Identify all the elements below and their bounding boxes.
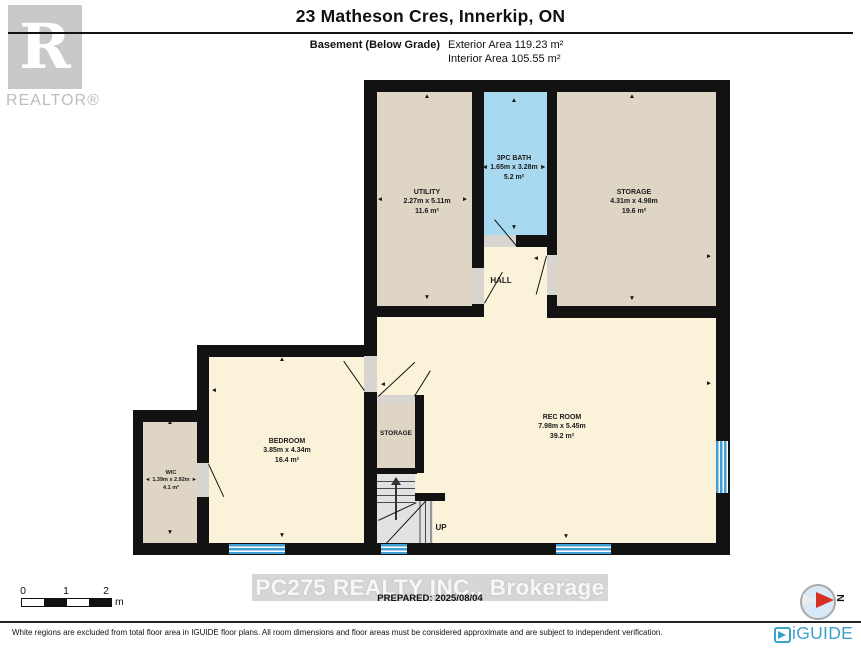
scale-bar-strip [21,598,112,607]
bedroom-door [364,356,377,392]
dim-arrow-left-icon: ◄ [380,382,386,389]
scale-tick: 2 [103,585,109,597]
stairs-window [381,544,407,554]
wall-segment [375,468,417,474]
compass-north-label: N [834,594,846,602]
wall-segment [133,410,143,555]
dim-arrow-down-icon: ▼ [279,533,285,540]
dim-arrow-down-icon: ▼ [167,530,173,537]
floor-plan-sheet: R REALTOR® 23 Matheson Cres, Innerkip, O… [0,0,861,650]
dim-arrow-up-icon: ▲ [424,94,430,101]
dim-arrow-up-icon: ▲ [279,357,285,364]
storage-main-door [547,255,557,295]
hall-label: HALL [490,276,511,287]
realtor-logo-caption: REALTOR® [6,92,100,110]
scale-tick: 0 [20,585,26,597]
storage-main-label: STORAGE 4.31m x 4.98m 19.6 m² [610,188,657,216]
stairs-direction-line [395,484,397,520]
dim-arrow-up-icon: ▲ [563,311,569,318]
compass-needle-head [816,592,834,608]
scale-tick: 1 [63,585,69,597]
dim-arrow-right-icon: ► [192,477,197,483]
exterior-area: Exterior Area 119.23 m² [448,39,563,51]
header-divider [8,32,853,34]
dim-arrow-right-icon: ► [540,164,547,171]
dim-arrow-left-icon: ◄ [145,477,150,483]
wic-label: WIC ◄1.39m x 2.92m► 4.1 m² [143,470,199,492]
page-title: 23 Matheson Cres, Innerkip, ON [0,6,861,27]
wall-segment [547,306,730,318]
rec-room-right-window [716,441,728,493]
dim-arrow-right-icon: ► [706,381,712,388]
rec-room-bottom-window [556,544,611,554]
dim-arrow-down-icon: ▼ [629,296,635,303]
dim-arrow-down-icon: ▼ [511,225,517,232]
bedroom-window [229,544,285,554]
scale-unit: m [115,596,124,608]
dim-arrow-up-icon: ▲ [629,94,635,101]
bedroom-label: BEDROOM 3.85m x 4.34m 16.4 m² [263,437,310,465]
footer-divider [0,621,861,623]
dim-arrow-left-icon: ◄ [481,164,488,171]
wall-segment [197,345,209,463]
disclaimer-text: White regions are excluded from total fl… [12,628,712,637]
wall-segment [197,345,377,357]
dim-arrow-right-icon: ► [462,197,468,204]
utility-door [472,268,484,304]
dim-arrow-down-icon: ▼ [563,534,569,541]
iguide-logo-glyph [778,631,786,639]
storage-small-label: STORAGE [380,430,412,439]
rec-room-label: REC ROOM 7.98m x 5.45m 39.2 m² [538,413,585,441]
dim-arrow-down-icon: ▼ [424,295,430,302]
wall-segment [516,235,547,247]
dim-arrow-up-icon: ▲ [511,98,517,105]
iguide-logo-text: iGUIDE [792,623,853,644]
stairs-up-label: UP [435,523,446,534]
dim-arrow-left-icon: ◄ [533,256,539,263]
wall-segment [415,493,445,501]
wall-segment [364,306,484,317]
prepared-date: PREPARED: 2025/08/04 [280,593,580,604]
wall-segment [133,543,730,555]
stairs-direction-arrow-icon [391,477,401,485]
dim-arrow-left-icon: ◄ [377,197,383,204]
dim-arrow-right-icon: ► [706,254,712,261]
dim-arrow-up-icon: ▲ [167,420,173,427]
wall-segment [472,304,484,317]
floor-label: Basement (Below Grade) [200,39,440,51]
storage-small-door [377,395,415,403]
utility-label: UTILITY 2.27m x 5.11m 11.6 m² [403,188,450,216]
interior-area: Interior Area 105.55 m² [448,53,561,65]
iguide-logo-icon [774,627,791,643]
bath-label: 3PC BATH ◄1.65m x 3.28m► 5.2 m² [479,154,548,182]
dim-arrow-left-icon: ◄ [211,388,217,395]
wall-segment [415,395,424,473]
